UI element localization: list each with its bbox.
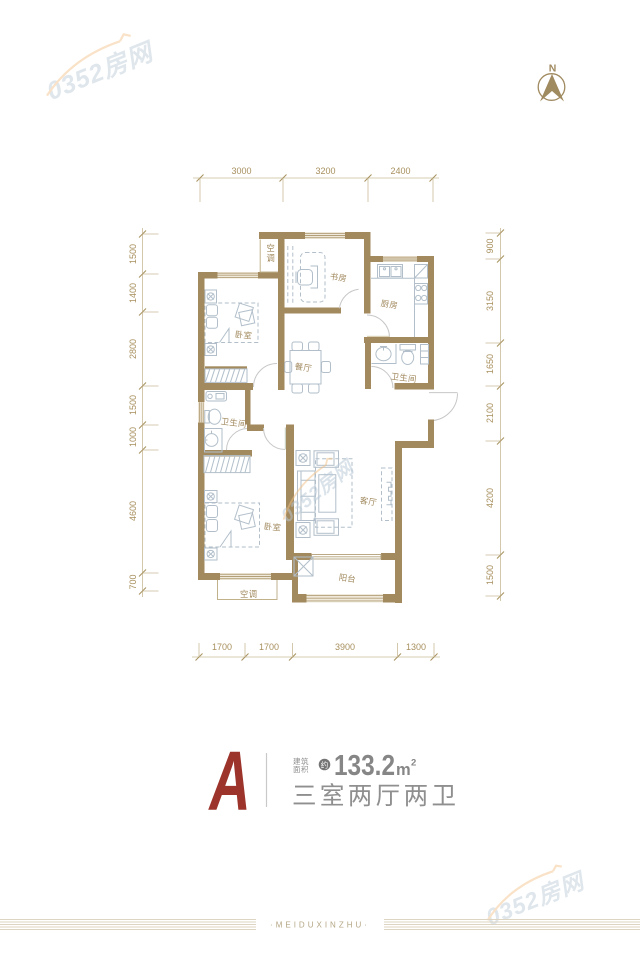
svg-text:约: 约 (321, 759, 329, 769)
svg-text:书房: 书房 (329, 271, 348, 284)
svg-text:m: m (396, 761, 411, 779)
svg-text:2400: 2400 (390, 166, 410, 176)
svg-text:餐厅: 餐厅 (294, 361, 313, 374)
svg-text:调: 调 (267, 253, 276, 263)
svg-text:2800: 2800 (128, 339, 138, 359)
svg-text:N: N (549, 63, 557, 75)
svg-text:4200: 4200 (485, 488, 495, 508)
svg-text:卧室: 卧室 (263, 521, 281, 533)
svg-text:1000: 1000 (128, 427, 138, 447)
svg-text:700: 700 (128, 574, 138, 589)
svg-text:客厅: 客厅 (359, 495, 378, 508)
svg-text:卫生间: 卫生间 (390, 371, 417, 384)
svg-text:1700: 1700 (212, 642, 232, 652)
svg-text:空调: 空调 (240, 589, 257, 599)
svg-text:3000: 3000 (231, 166, 251, 176)
svg-text:0352房网: 0352房网 (43, 37, 160, 106)
svg-text:133.2: 133.2 (334, 750, 395, 782)
svg-text:1300: 1300 (406, 642, 426, 652)
svg-text:1700: 1700 (259, 642, 279, 652)
svg-text:1400: 1400 (128, 283, 138, 303)
svg-text:3150: 3150 (485, 291, 495, 311)
svg-text:4600: 4600 (128, 501, 138, 521)
svg-text:空: 空 (267, 243, 276, 253)
svg-text:卧室: 卧室 (234, 329, 252, 341)
svg-text:1500: 1500 (128, 244, 138, 264)
svg-text:三室两厅两卫: 三室两厅两卫 (292, 782, 459, 810)
svg-text:1500: 1500 (485, 565, 495, 585)
svg-text:3200: 3200 (315, 166, 335, 176)
svg-text:3900: 3900 (335, 642, 355, 652)
svg-text:·MEIDUXINZHU·: ·MEIDUXINZHU· (270, 921, 370, 930)
svg-text:卫生间: 卫生间 (220, 416, 247, 429)
svg-text:2: 2 (411, 758, 416, 769)
svg-text:900: 900 (485, 238, 495, 253)
svg-text:2100: 2100 (485, 403, 495, 423)
svg-text:厨房: 厨房 (380, 298, 399, 311)
svg-text:1650: 1650 (485, 354, 495, 374)
svg-text:面积: 面积 (293, 764, 309, 774)
svg-text:0352房网: 0352房网 (482, 867, 590, 931)
svg-text:阳台: 阳台 (338, 572, 357, 584)
svg-text:A: A (208, 735, 251, 829)
svg-text:1500: 1500 (128, 395, 138, 415)
